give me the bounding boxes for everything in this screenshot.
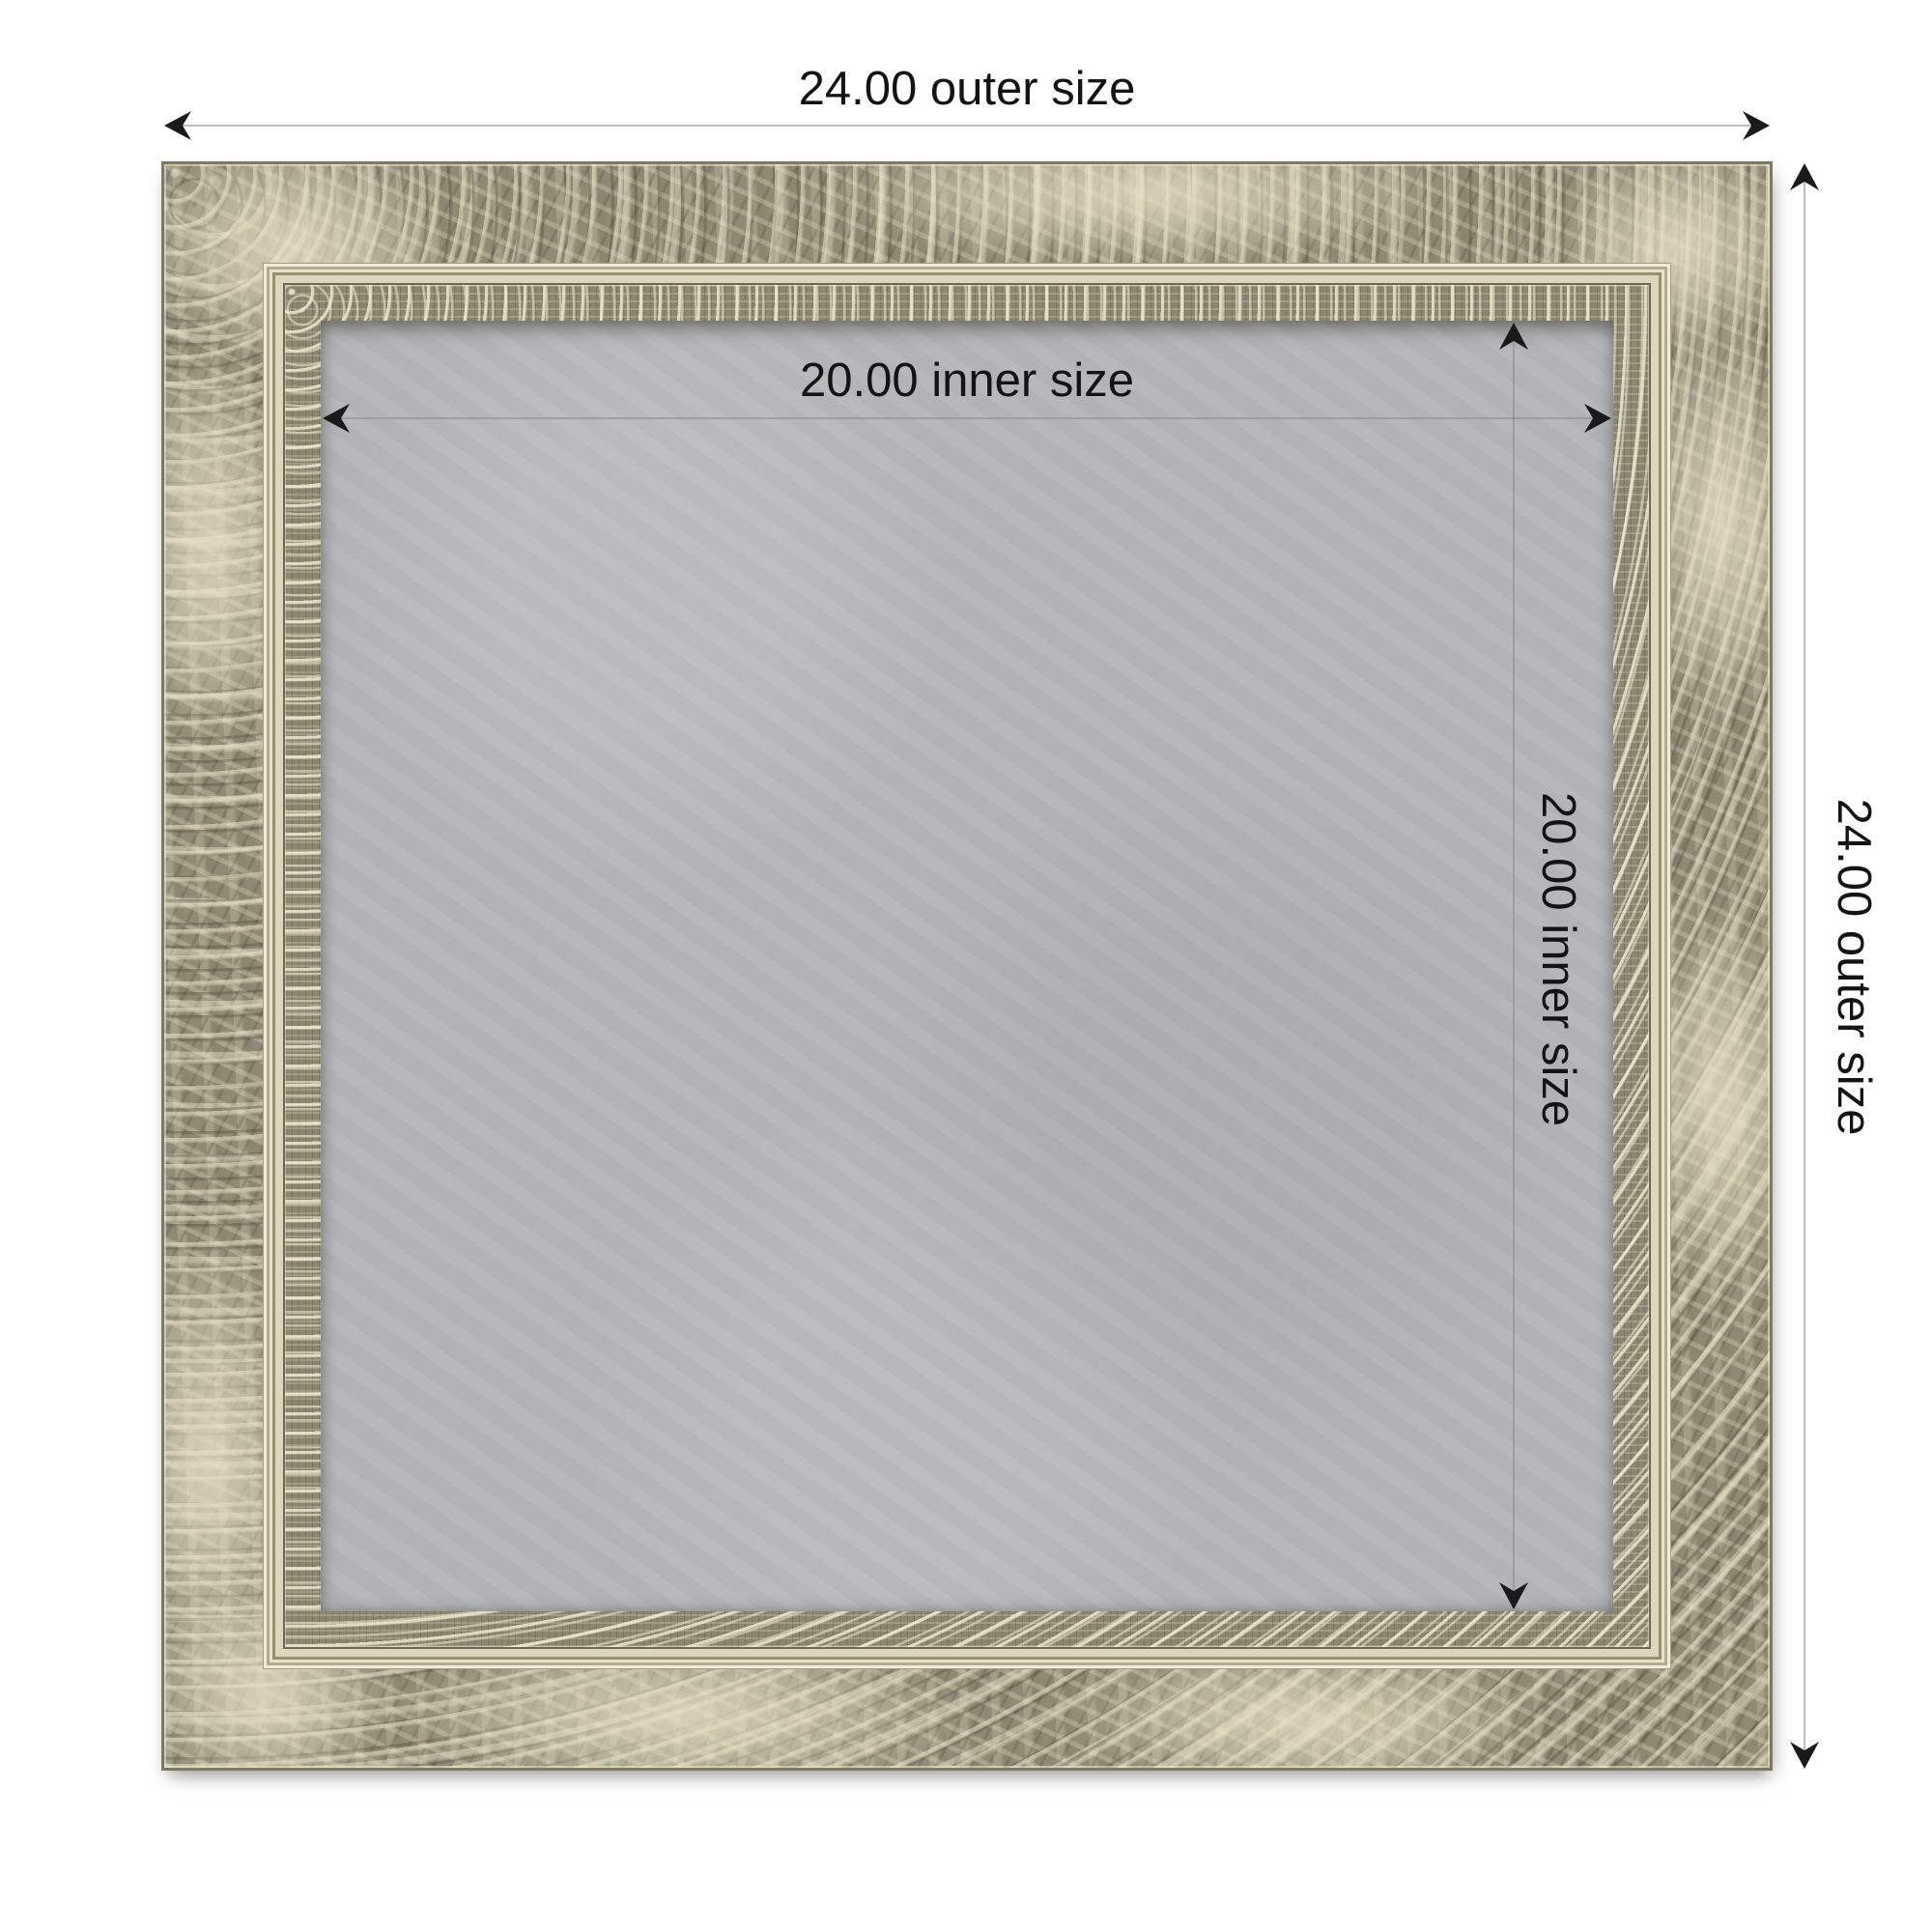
magnetic-board bbox=[321, 321, 1613, 1611]
distress-patch bbox=[821, 161, 1459, 267]
outer-width-label: 24.00 outer size bbox=[161, 62, 1773, 116]
frame-inner-band bbox=[283, 283, 1651, 1649]
inner-height-label: 20.00 inner size bbox=[1531, 792, 1585, 1126]
outer-height-label: 24.00 outer size bbox=[1827, 799, 1881, 1136]
product-dimension-diagram: 24.00 outer size 24.00 outer size 20.00 … bbox=[0, 0, 1932, 1932]
inner-width-label: 20.00 inner size bbox=[321, 354, 1613, 408]
outer-height-dimension-line bbox=[1788, 160, 1821, 1772]
inner-height-dimension-line bbox=[1497, 321, 1530, 1611]
frame-lip bbox=[263, 263, 1671, 1669]
